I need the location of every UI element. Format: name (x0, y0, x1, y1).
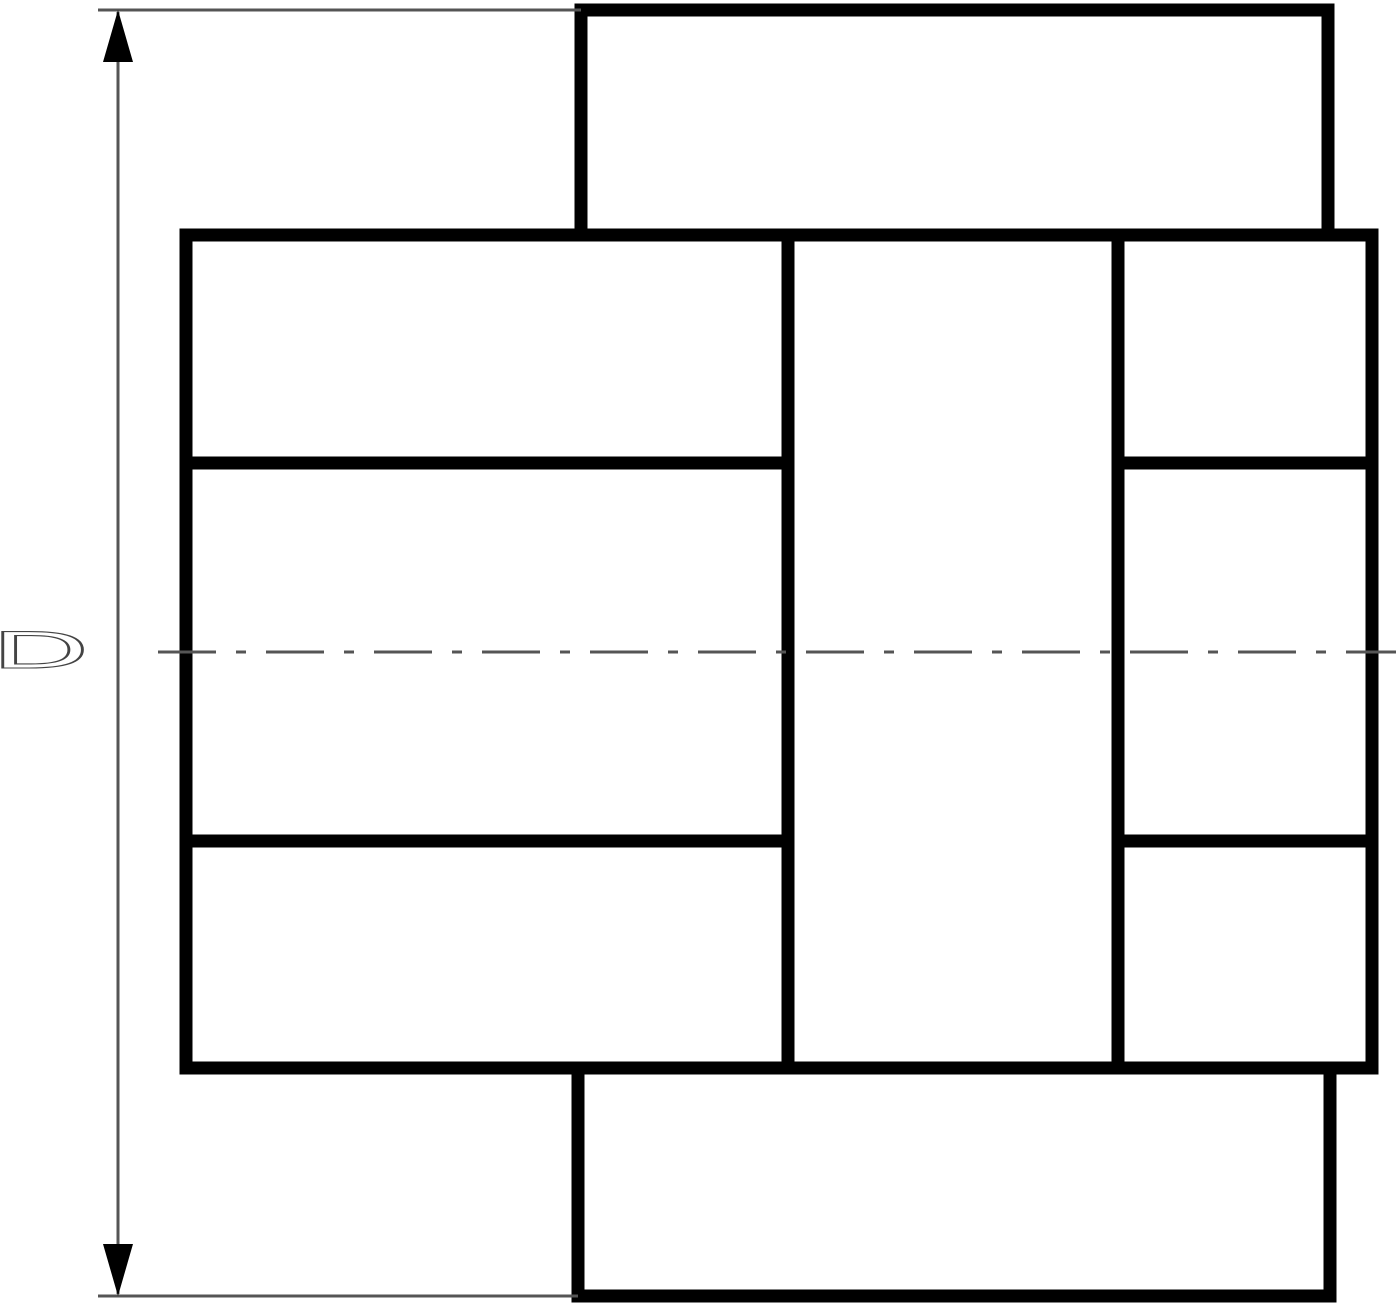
arrowhead-bottom-icon (103, 1244, 133, 1296)
dimension-label: D (0, 622, 90, 680)
engineering-section-drawing: D (0, 0, 1400, 1311)
outer-ring-bottom-section-hatch (578, 1068, 1330, 1296)
outer-ring-top-section-hatch (581, 10, 1328, 235)
arrowhead-top-icon (103, 10, 133, 62)
